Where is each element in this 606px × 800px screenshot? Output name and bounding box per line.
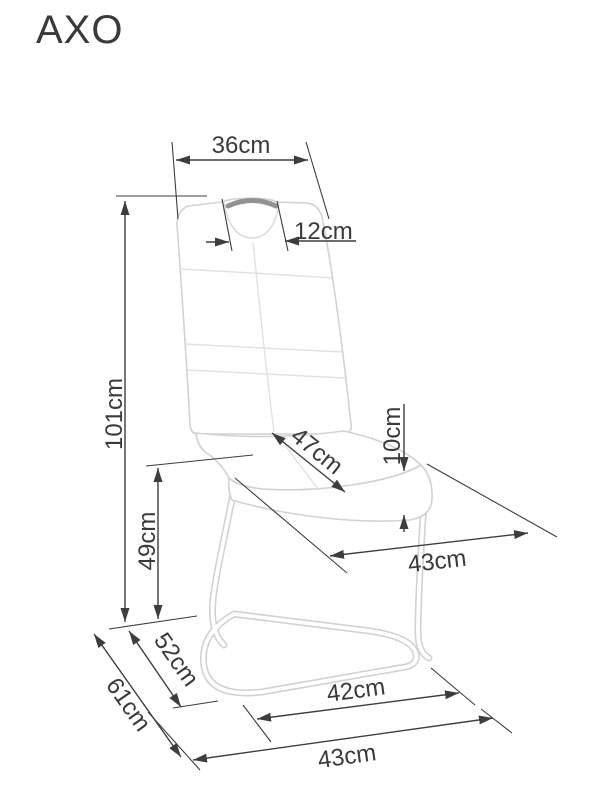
dim-label-cushion-thickness: 10cm	[379, 407, 406, 466]
ext-line	[148, 712, 200, 770]
dimension-overall-front-width: 43cm	[148, 709, 512, 774]
ext-line	[431, 668, 475, 705]
dim-label-base-depth: 52cm	[148, 628, 204, 692]
ext-line	[243, 705, 271, 742]
ext-line	[172, 142, 178, 219]
dimension-base-width: 42cm	[243, 668, 475, 742]
dim-label-overall-front-width: 43cm	[316, 739, 378, 774]
dim-label-handle-width: 12cm	[294, 218, 353, 245]
dimension-diagram: 36cm 12cm 101cm 49cm	[0, 0, 606, 800]
dim-label-total-depth: 61cm	[100, 673, 156, 737]
dim-label-seat-width: 43cm	[406, 545, 467, 579]
dim-label-total-height: 101cm	[101, 378, 128, 450]
dim-label-back-width: 36cm	[212, 132, 271, 159]
ext-line	[427, 464, 557, 537]
ext-line	[481, 709, 512, 733]
ext-line	[109, 616, 197, 629]
diagram-stage: AXO	[0, 0, 606, 800]
dim-label-seat-height: 49cm	[134, 512, 161, 571]
